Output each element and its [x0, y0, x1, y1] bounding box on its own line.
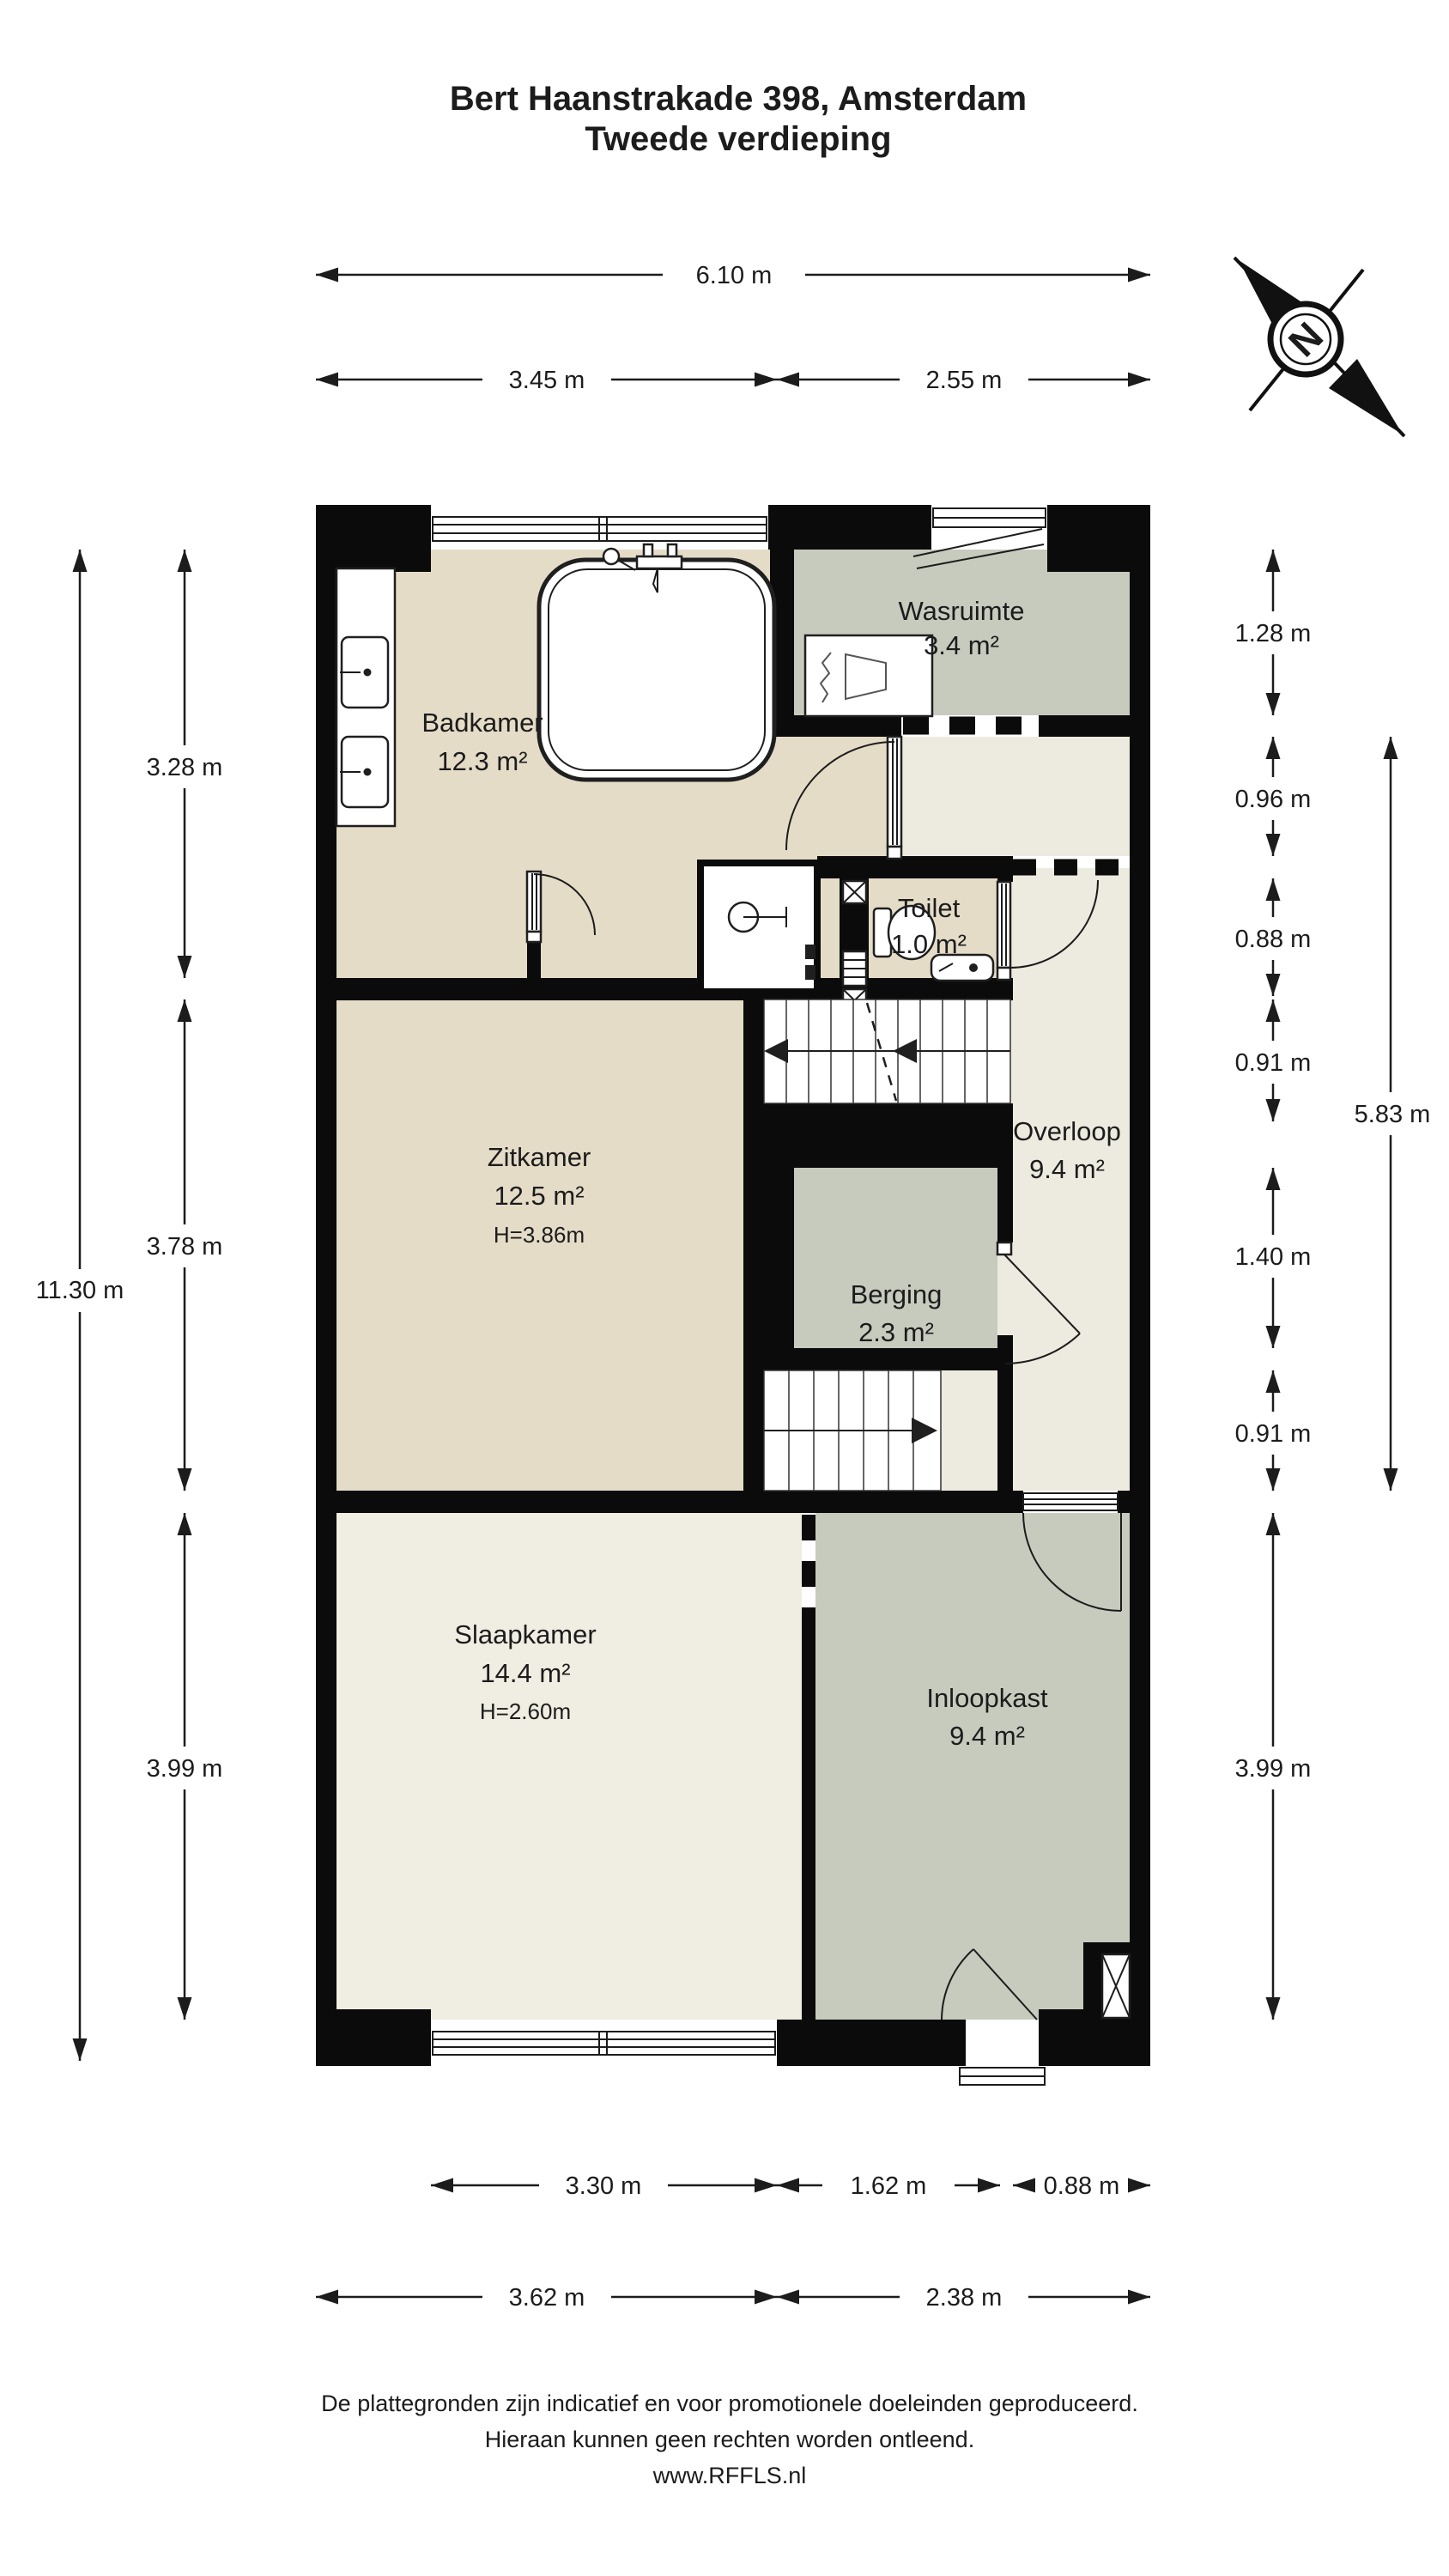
- zitkamer-height: H=3.86m: [494, 1222, 585, 1248]
- stairs-lower-icon: [764, 1370, 941, 1491]
- berging-area: 2.3 m²: [858, 1317, 934, 1347]
- title-floor: Tweede verdieping: [585, 120, 891, 158]
- door-badkamer-interior-threshold: [527, 932, 541, 942]
- dimensions-top: 6.10 m 3.45 m 2.55 m: [316, 262, 1150, 394]
- wall-slaapkamer-inloopkast: [802, 1623, 815, 2020]
- dim-top-left: 3.45 m: [509, 367, 585, 394]
- badkamer-floor-extension: [770, 737, 901, 856]
- wall-zitkamer-right: [743, 999, 764, 1491]
- page-title: Bert Haanstrakade 398, Amsterdam Tweede …: [450, 80, 1027, 158]
- door-balkon-gap: [966, 2020, 1039, 2066]
- badkamer-label: Badkamer: [421, 708, 543, 738]
- zitkamer-label: Zitkamer: [488, 1142, 591, 1172]
- door-badkamer-overloop-threshold: [888, 847, 901, 859]
- wall-shaft-top: [1083, 1942, 1130, 1954]
- dim-bottom2-left: 3.62 m: [509, 2284, 585, 2312]
- floorplan-drawing: Bert Haanstrakade 398, Amsterdam Tweede …: [0, 0, 1449, 2576]
- dim-left-seg2: 3.78 m: [147, 1233, 223, 1261]
- wall-berging-bottom: [764, 1348, 1013, 1370]
- slaapkamer-height: H=2.60m: [480, 1698, 571, 1724]
- footer-line2: Hieraan kunnen geen rechten worden ontle…: [485, 2427, 974, 2452]
- dim-right-seg2: 0.96 m: [1235, 786, 1312, 813]
- shaft-icon: [1102, 1954, 1130, 2018]
- compass-north-icon: N: [1234, 258, 1404, 436]
- door-berging-threshold: [997, 1242, 1011, 1255]
- dimensions-left: 11.30 m 3.28 m 3.78 m 3.99 m: [36, 550, 223, 2061]
- wall-stairs-right: [997, 1370, 1013, 1491]
- wall-right: [1130, 505, 1150, 2066]
- zitkamer-area: 12.5 m²: [494, 1181, 584, 1211]
- berging-label: Berging: [851, 1279, 943, 1309]
- dim-right-seg7: 3.99 m: [1235, 1755, 1312, 1783]
- overloop-area: 9.4 m²: [1029, 1154, 1105, 1184]
- title-address: Bert Haanstrakade 398, Amsterdam: [450, 80, 1027, 118]
- wall-berging-top: [764, 1103, 1013, 1168]
- wall-toilet-right-top: [997, 856, 1013, 882]
- overloop-label: Overloop: [1013, 1116, 1121, 1146]
- shower-icon: [700, 863, 817, 992]
- dim-right-span: 5.83 m: [1355, 1101, 1431, 1128]
- vanity-sinks-icon: [336, 568, 395, 826]
- wasruimte-label: Wasruimte: [899, 596, 1025, 626]
- inloopkast-area: 9.4 m²: [949, 1721, 1025, 1751]
- dim-bottom1-mid: 1.62 m: [851, 2172, 927, 2200]
- dim-right-seg3: 0.88 m: [1235, 926, 1312, 953]
- dim-right-seg5: 1.40 m: [1235, 1243, 1312, 1271]
- inloopkast-floor: [815, 1513, 1130, 2020]
- dim-right-seg1: 1.28 m: [1235, 620, 1312, 647]
- slaapkamer-area: 14.4 m²: [480, 1658, 570, 1688]
- dimensions-right: 1.28 m 0.96 m 0.88 m 0.91 m 1.40 m 0.91 …: [1235, 550, 1431, 2020]
- wall-berging-right-top: [997, 1158, 1013, 1242]
- slaapkamer-window-gap: [431, 2020, 777, 2066]
- footer-line1: De plattegronden zijn indicatief en voor…: [321, 2391, 1138, 2416]
- wall-badkamer-door-stub: [527, 942, 541, 980]
- dimensions-bottom: 3.30 m 1.62 m 0.88 m 3.62 m 2.38 m: [316, 2172, 1150, 2312]
- wasruimte-area: 3.4 m²: [924, 630, 999, 660]
- dim-left-seg1: 3.28 m: [147, 754, 223, 781]
- toilet-label: Toilet: [898, 893, 961, 923]
- dim-top-right: 2.55 m: [926, 367, 1003, 394]
- washing-machine-icon: [805, 635, 932, 716]
- overloop-landing-floor: [941, 1370, 997, 1491]
- wall-slaapkamer-top: [316, 1491, 1013, 1513]
- dim-bottom1-right: 0.88 m: [1044, 2172, 1120, 2200]
- stairs-upper-icon: [764, 999, 1010, 1103]
- footer-disclaimer: De plattegronden zijn indicatief en voor…: [321, 2391, 1138, 2488]
- door-toilet-leaf: [997, 882, 1010, 968]
- bathtub-icon: [539, 544, 774, 780]
- overloop-vestibule-floor: [901, 737, 1130, 856]
- door-badkamer-overloop-leaf: [888, 737, 901, 847]
- dim-left-total: 11.30 m: [36, 1277, 124, 1304]
- slaapkamer-window: [431, 2020, 777, 2066]
- inloopkast-label: Inloopkast: [926, 1683, 1048, 1713]
- door-badkamer-interior-leaf: [527, 872, 541, 932]
- door-toilet-threshold: [997, 968, 1010, 980]
- slaapkamer-label: Slaapkamer: [454, 1619, 596, 1649]
- wall-inloopkast-top-right: [1118, 1491, 1130, 1513]
- toilet-area: 1.0 m²: [891, 929, 967, 959]
- dim-top-total: 6.10 m: [696, 262, 773, 289]
- door-inloopkast-frame: [1023, 1493, 1118, 1510]
- slaapkamer-floor: [336, 1513, 802, 2020]
- badkamer-area: 12.3 m²: [437, 746, 527, 776]
- wall-left: [316, 505, 336, 2066]
- wall-bottom-left-pad: [316, 2009, 431, 2066]
- badkamer-window: [431, 505, 768, 550]
- dim-left-seg3: 3.99 m: [147, 1755, 223, 1783]
- wall-inloopkast-top-left: [1013, 1491, 1023, 1513]
- dim-right-seg6: 0.91 m: [1235, 1420, 1312, 1448]
- wall-badkamer-bottom: [316, 978, 1013, 1000]
- dim-right-seg4: 0.91 m: [1235, 1049, 1312, 1077]
- wall-berging-left: [764, 1103, 794, 1370]
- footer-website: www.RFFLS.nl: [652, 2463, 807, 2488]
- floorplan-page: Bert Haanstrakade 398, Amsterdam Tweede …: [0, 0, 1449, 2576]
- dim-bottom2-right: 2.38 m: [926, 2284, 1003, 2312]
- dim-bottom1-left: 3.30 m: [566, 2172, 642, 2200]
